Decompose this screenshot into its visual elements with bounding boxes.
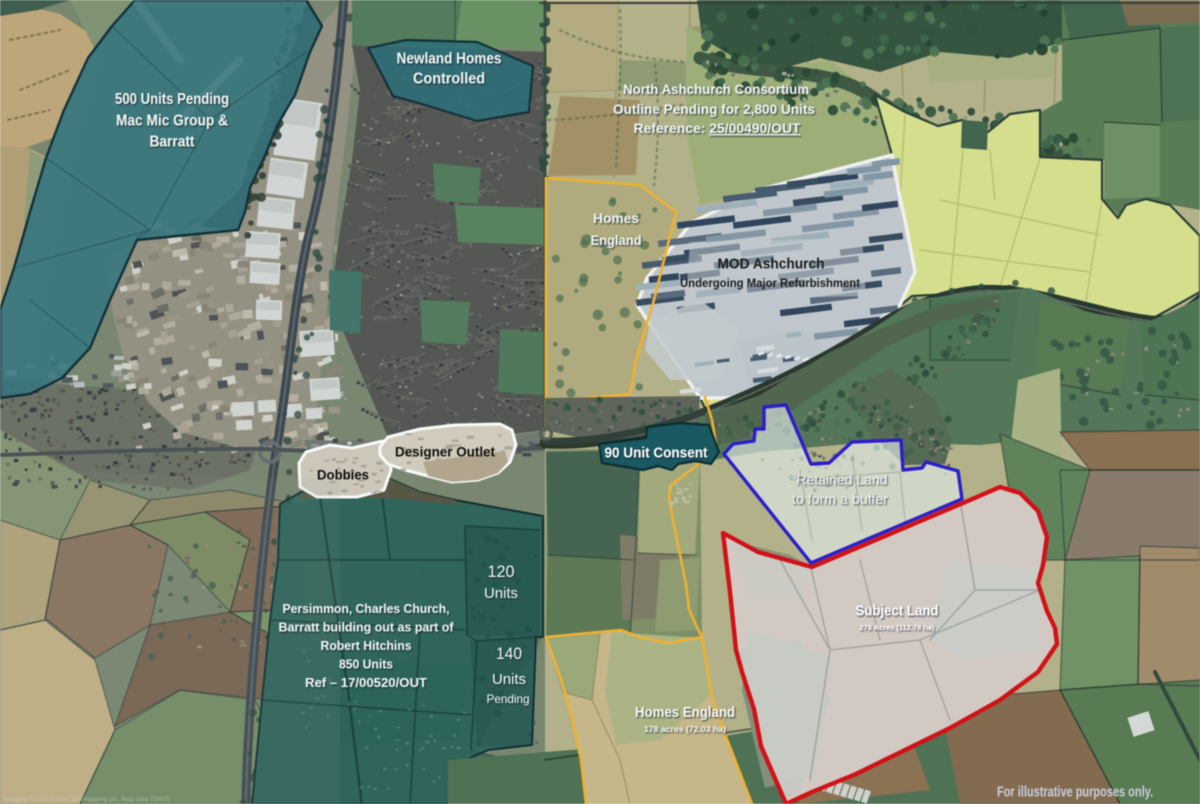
svg-text:Barratt building out as part o: Barratt building out as part of xyxy=(279,620,455,635)
svg-text:140: 140 xyxy=(496,644,522,663)
svg-text:to form a buffer: to form a buffer xyxy=(792,491,888,507)
svg-text:Reference: 25/00490/OUT: Reference: 25/00490/OUT xyxy=(634,120,801,136)
svg-text:Dobbies: Dobbies xyxy=(317,468,369,483)
svg-text:Mac Mic Group &: Mac Mic Group & xyxy=(116,113,228,130)
svg-text:278 Acres (112.78 ha): 278 Acres (112.78 ha) xyxy=(860,625,935,632)
svg-text:Homes England: Homes England xyxy=(635,705,735,721)
svg-text:MOD Ashchurch: MOD Ashchurch xyxy=(718,256,825,273)
svg-text:Barratt: Barratt xyxy=(150,134,195,151)
svg-text:Outline Pending for 2,800 Unit: Outline Pending for 2,800 Units xyxy=(613,101,815,117)
svg-text:Subject Land: Subject Land xyxy=(856,604,939,620)
svg-text:Ref – 17/00520/OUT: Ref – 17/00520/OUT xyxy=(305,675,427,690)
svg-text:England: England xyxy=(591,233,642,248)
svg-text:Units: Units xyxy=(484,585,518,602)
svg-text:Designer Outlet: Designer Outlet xyxy=(395,445,495,460)
svg-text:Retained Land: Retained Land xyxy=(797,472,888,488)
svg-text:For illustrative purposes only: For illustrative purposes only. xyxy=(997,784,1153,801)
svg-text:Controlled: Controlled xyxy=(413,71,485,88)
svg-text:178 acres (72.03 ha): 178 acres (72.03 ha) xyxy=(644,725,726,734)
svg-text:500 Units Pending: 500 Units Pending xyxy=(115,91,229,108)
svg-text:North Ashchurch Consortium: North Ashchurch Consortium xyxy=(623,81,809,97)
svg-text:120: 120 xyxy=(488,562,515,581)
svg-text:Imagery ©2025 Airbus, Getmappi: Imagery ©2025 Airbus, Getmapping plc, Ma… xyxy=(4,795,170,803)
svg-text:Persimmon, Charles Church,: Persimmon, Charles Church, xyxy=(283,601,450,616)
svg-text:Undergoing Major Refurbishment: Undergoing Major Refurbishment xyxy=(680,278,860,290)
svg-text:90 Unit Consent: 90 Unit Consent xyxy=(605,446,708,462)
svg-text:850 Units: 850 Units xyxy=(339,657,393,672)
svg-text:Robert Hitchins: Robert Hitchins xyxy=(321,638,412,653)
svg-text:Homes: Homes xyxy=(593,211,639,226)
svg-text:Pending: Pending xyxy=(487,692,530,706)
svg-text:Units: Units xyxy=(492,671,526,688)
svg-text:Newland Homes: Newland Homes xyxy=(397,51,502,68)
